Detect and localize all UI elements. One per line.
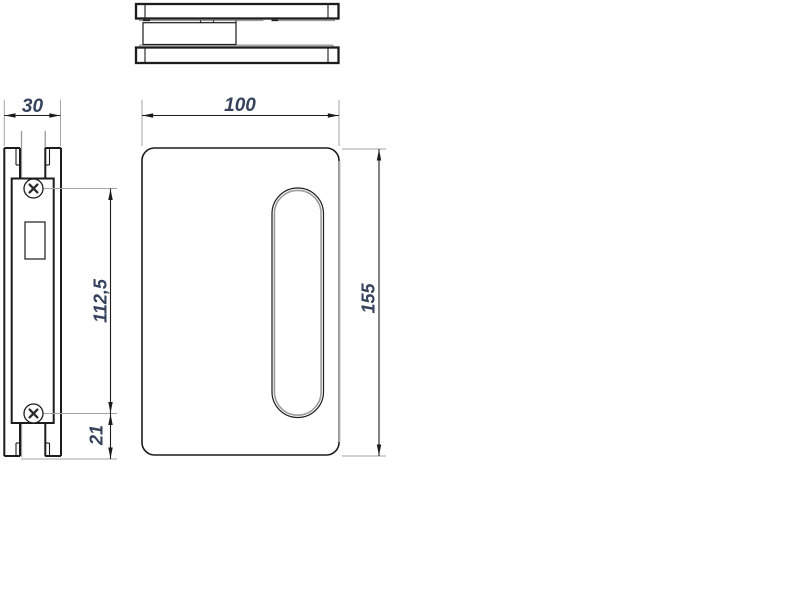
technical-drawing: 30 100 155 112,5 21 xyxy=(0,0,800,600)
mounting-slot xyxy=(25,222,45,259)
drawing-canvas: 30 100 155 112,5 21 xyxy=(0,0,800,600)
dim-label-side-width: 30 xyxy=(22,96,44,117)
clamp-block xyxy=(143,23,236,45)
finger-pull-slot xyxy=(272,188,324,418)
side-view xyxy=(4,131,61,457)
screw-top xyxy=(24,179,43,198)
dim-label-plate-width: 100 xyxy=(224,95,256,116)
handle-body xyxy=(12,179,54,424)
top-view xyxy=(136,4,339,63)
top-view-lower-plate xyxy=(136,48,339,64)
gasket-lines xyxy=(139,20,335,47)
dim-label-plate-height: 155 xyxy=(359,283,379,314)
screw-bottom xyxy=(24,404,43,423)
top-view-upper-plate xyxy=(136,4,339,19)
dim-label-bottom-offset: 21 xyxy=(87,425,107,446)
front-view xyxy=(142,148,339,455)
dim-label-screw-span: 112,5 xyxy=(91,278,111,323)
